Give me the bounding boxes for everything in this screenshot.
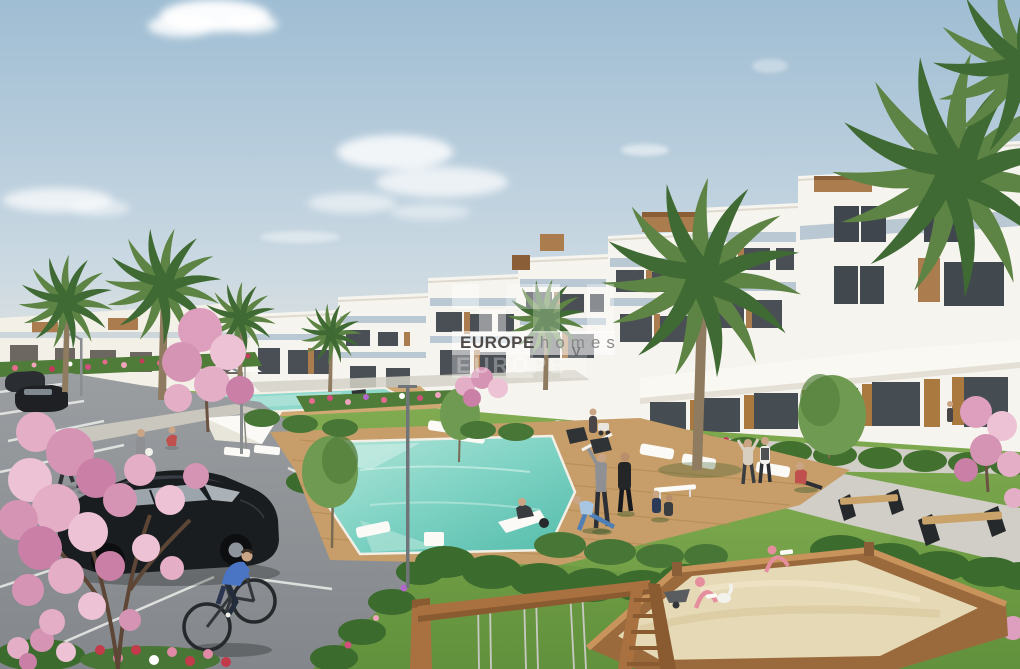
brand-text-bold: EUROPE	[460, 333, 535, 352]
render-image: EUROPE EUROPEhomes V	[0, 0, 1020, 669]
watermark-ghost-text: EUROPE	[456, 353, 567, 378]
watermark-mark: V	[572, 344, 581, 359]
svg-text:EUROPEhomes: EUROPEhomes	[460, 333, 621, 352]
person-standing	[947, 401, 953, 422]
